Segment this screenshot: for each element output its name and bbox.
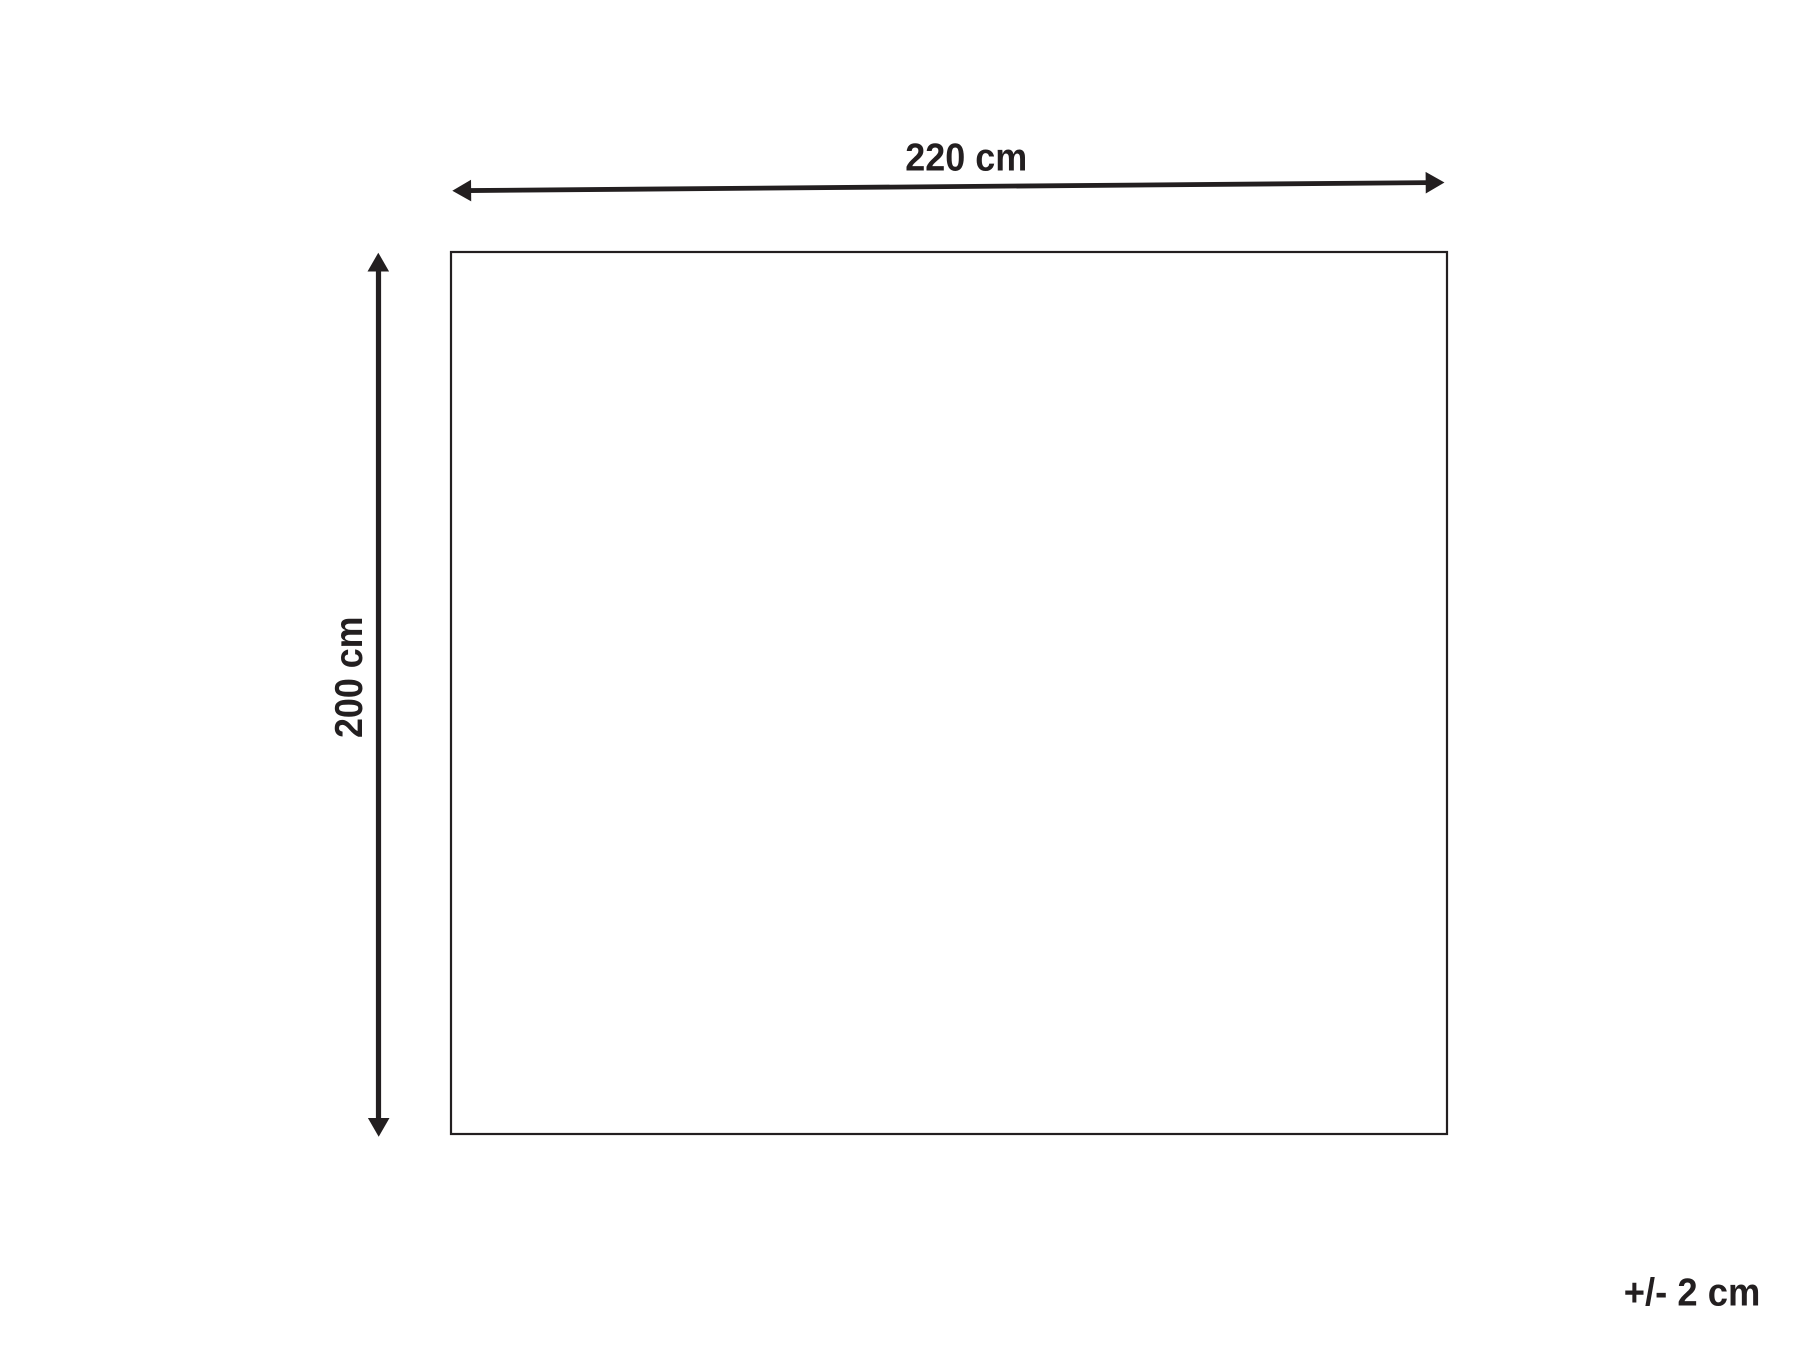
svg-text:+/- 2 cm: +/- 2 cm bbox=[1624, 1271, 1761, 1314]
svg-text:220 cm: 220 cm bbox=[905, 136, 1027, 179]
svg-text:200 cm: 200 cm bbox=[328, 617, 371, 739]
